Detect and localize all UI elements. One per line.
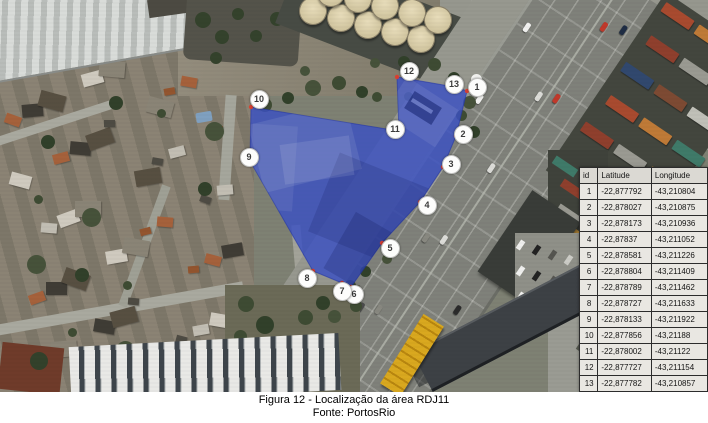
cell-latitude: -22,878789 bbox=[598, 280, 652, 296]
table-row: 10-22,877856-43,21188 bbox=[580, 328, 708, 344]
cell-id: 7 bbox=[580, 280, 598, 296]
cell-longitude: -43,211226 bbox=[651, 248, 707, 264]
area-marker-2: 2 bbox=[454, 125, 473, 144]
cell-latitude: -22,877727 bbox=[598, 360, 652, 376]
cell-id: 5 bbox=[580, 248, 598, 264]
area-marker-3: 3 bbox=[442, 155, 461, 174]
table-header-row: id Latitude Longitude bbox=[580, 168, 708, 184]
table-row: 5-22,878581-43,211226 bbox=[580, 248, 708, 264]
cell-longitude: -43,210857 bbox=[651, 376, 707, 392]
area-marker-13: 13 bbox=[445, 75, 464, 94]
cell-latitude: -22,878727 bbox=[598, 296, 652, 312]
cell-latitude: -22,878002 bbox=[598, 344, 652, 360]
figure-rdj11: 12345678910111213 id Latitude Longitude … bbox=[0, 0, 708, 423]
cell-longitude: -43,211922 bbox=[651, 312, 707, 328]
area-marker-9: 9 bbox=[240, 148, 259, 167]
table-row: 8-22,878727-43,211633 bbox=[580, 296, 708, 312]
table-row: 6-22,878804-43,211409 bbox=[580, 264, 708, 280]
cell-latitude: -22,878133 bbox=[598, 312, 652, 328]
cell-longitude: -43,21188 bbox=[651, 328, 707, 344]
cell-latitude: -22,878027 bbox=[598, 200, 652, 216]
cell-id: 4 bbox=[580, 232, 598, 248]
figure-caption: Figura 12 - Localização da área RDJ11 Fo… bbox=[0, 392, 708, 423]
cell-longitude: -43,211462 bbox=[651, 280, 707, 296]
cell-latitude: -22,877856 bbox=[598, 328, 652, 344]
area-marker-1: 1 bbox=[468, 78, 487, 97]
col-header-longitude: Longitude bbox=[651, 168, 707, 184]
area-marker-11: 11 bbox=[386, 120, 405, 139]
cell-longitude: -43,21122 bbox=[651, 344, 707, 360]
table-row: 12-22,877727-43,211154 bbox=[580, 360, 708, 376]
cell-longitude: -43,211633 bbox=[651, 296, 707, 312]
area-marker-10: 10 bbox=[250, 90, 269, 109]
table-row: 13-22,877782-43,210857 bbox=[580, 376, 708, 392]
table-row: 9-22,878133-43,211922 bbox=[580, 312, 708, 328]
cell-latitude: -22,877782 bbox=[598, 376, 652, 392]
area-marker-12: 12 bbox=[400, 62, 419, 81]
cell-id: 9 bbox=[580, 312, 598, 328]
cell-id: 8 bbox=[580, 296, 598, 312]
area-marker-8: 8 bbox=[298, 269, 317, 288]
caption-source: Fonte: PortosRio bbox=[0, 407, 708, 420]
cell-id: 12 bbox=[580, 360, 598, 376]
cell-id: 11 bbox=[580, 344, 598, 360]
cell-longitude: -43,211154 bbox=[651, 360, 707, 376]
cell-longitude: -43,210875 bbox=[651, 200, 707, 216]
cell-longitude: -43,211052 bbox=[651, 232, 707, 248]
cell-latitude: -22,877792 bbox=[598, 184, 652, 200]
cell-id: 3 bbox=[580, 216, 598, 232]
cell-latitude: -22,878581 bbox=[598, 248, 652, 264]
cell-longitude: -43,210804 bbox=[651, 184, 707, 200]
cell-longitude: -43,210936 bbox=[651, 216, 707, 232]
cell-latitude: -22,87837 bbox=[598, 232, 652, 248]
col-header-id: id bbox=[580, 168, 598, 184]
table-row: 4-22,87837-43,211052 bbox=[580, 232, 708, 248]
coordinates-table: id Latitude Longitude 1-22,877792-43,210… bbox=[579, 167, 708, 392]
vertex-dot bbox=[395, 75, 399, 79]
col-header-latitude: Latitude bbox=[598, 168, 652, 184]
cell-id: 6 bbox=[580, 264, 598, 280]
cell-id: 13 bbox=[580, 376, 598, 392]
area-marker-4: 4 bbox=[418, 196, 437, 215]
area-marker-5: 5 bbox=[381, 239, 400, 258]
cell-id: 10 bbox=[580, 328, 598, 344]
satellite-map: 12345678910111213 id Latitude Longitude … bbox=[0, 0, 708, 392]
cell-longitude: -43,211409 bbox=[651, 264, 707, 280]
table-row: 11-22,878002-43,21122 bbox=[580, 344, 708, 360]
cell-latitude: -22,878804 bbox=[598, 264, 652, 280]
area-marker-7: 7 bbox=[333, 282, 352, 301]
cell-latitude: -22,878173 bbox=[598, 216, 652, 232]
cell-id: 2 bbox=[580, 200, 598, 216]
table-row: 1-22,877792-43,210804 bbox=[580, 184, 708, 200]
table-row: 3-22,878173-43,210936 bbox=[580, 216, 708, 232]
cell-id: 1 bbox=[580, 184, 598, 200]
caption-title: Figura 12 - Localização da área RDJ11 bbox=[0, 392, 708, 407]
table-row: 2-22,878027-43,210875 bbox=[580, 200, 708, 216]
table-row: 7-22,878789-43,211462 bbox=[580, 280, 708, 296]
